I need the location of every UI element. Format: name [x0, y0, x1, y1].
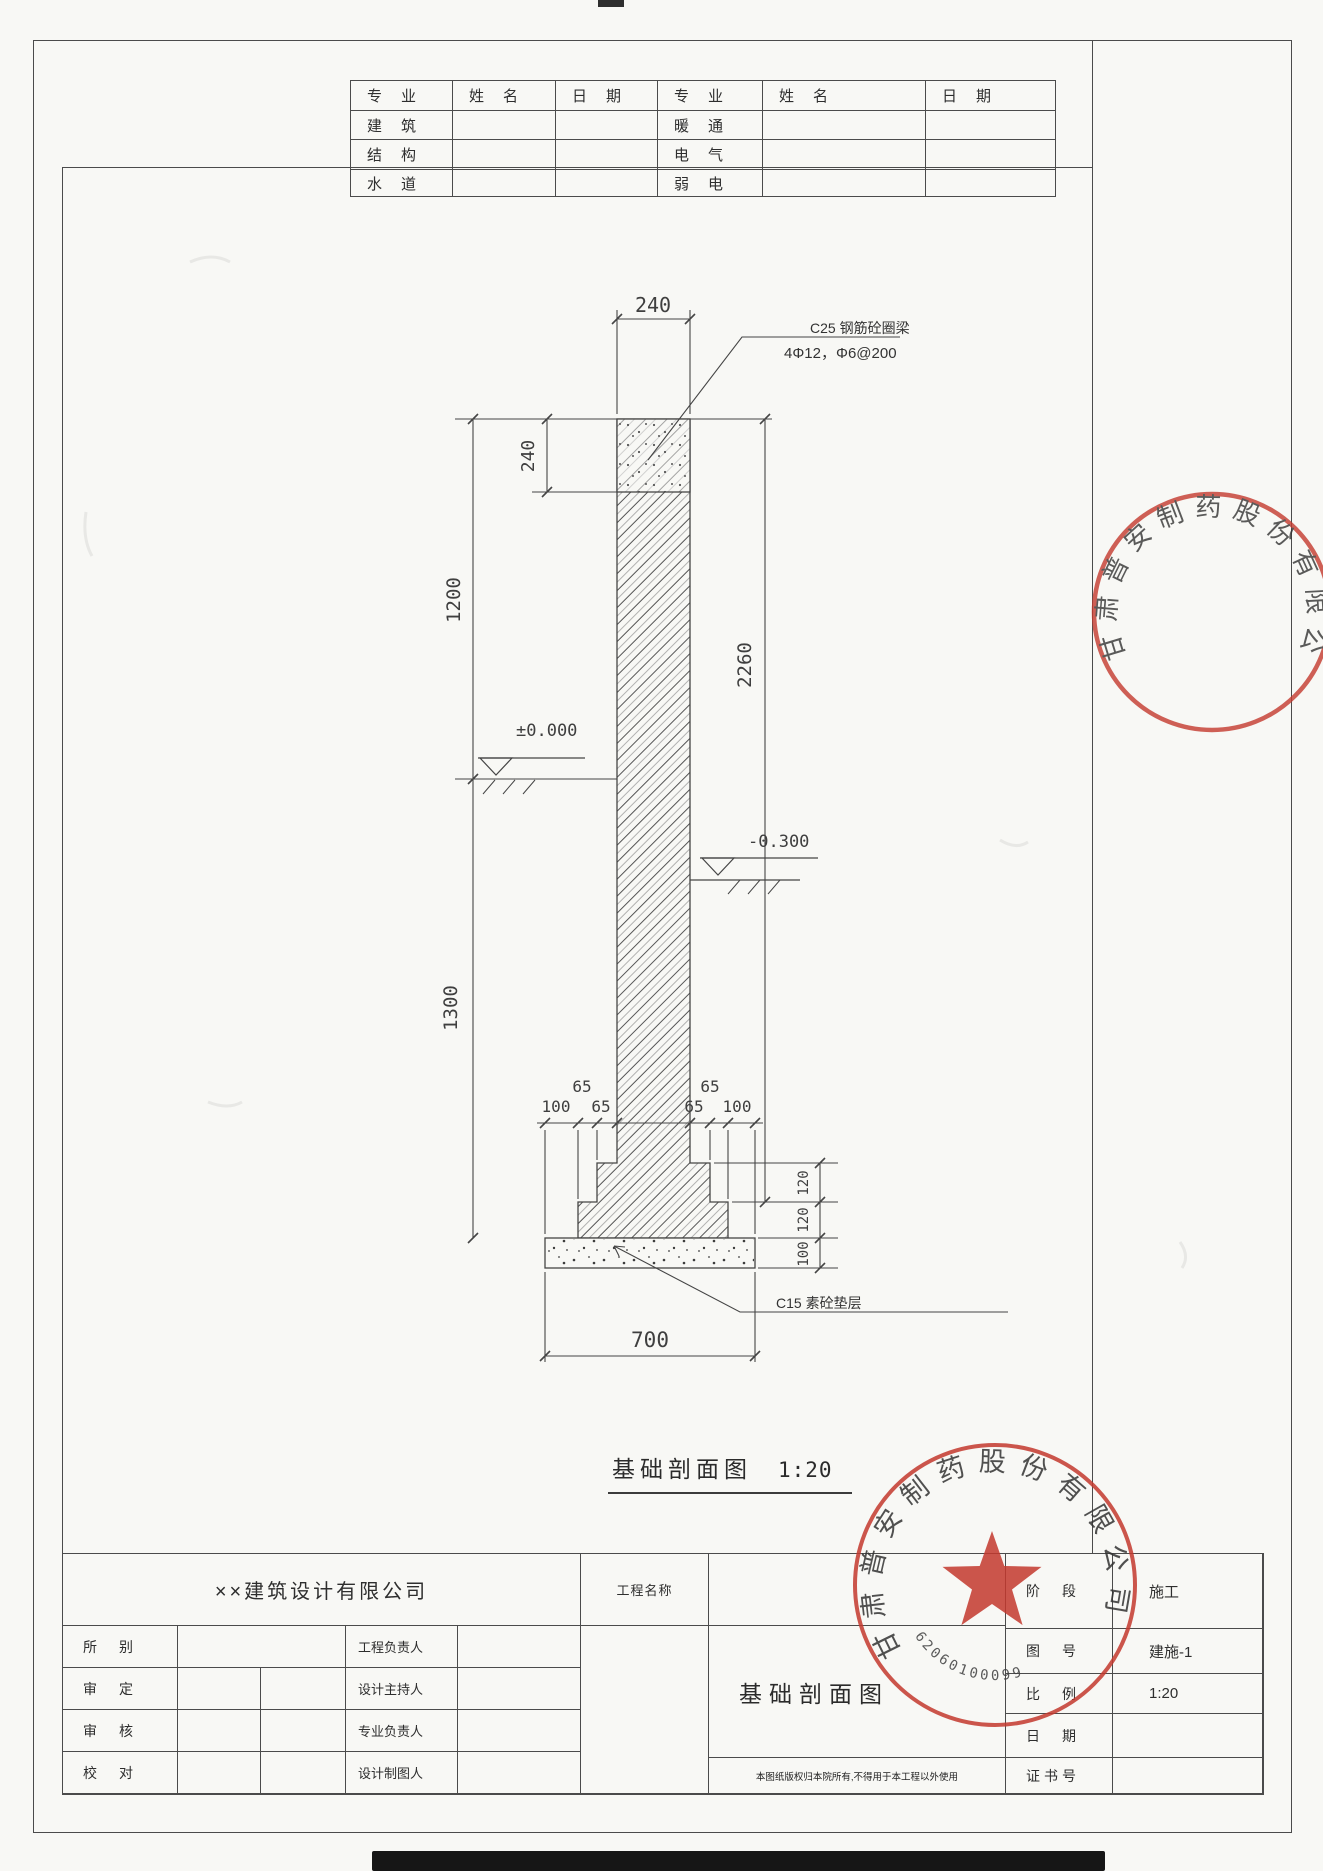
dim-1300: 1300 [440, 985, 462, 1031]
dim-120-b: 120 [796, 1207, 812, 1232]
ring-beam-annotation-line1: C25 钢筋砼圈梁 [810, 320, 910, 336]
scanned-drawing-sheet: 专 业 姓 名 日 期 专 业 姓 名 日 期 建 筑 暖 通 结 构 电 气 … [0, 0, 1323, 1871]
dim-120-a: 120 [796, 1170, 812, 1195]
pad-annotation: C15 素砼垫层 [776, 1295, 862, 1311]
dim-65-right-lower: 65 [684, 1097, 703, 1116]
level-minus-label: -0.300 [748, 832, 809, 852]
dim-1200: 1200 [443, 577, 465, 623]
foundation-section-drawing: 240 240 1200 1300 2260 65 100 65 65 65 1… [0, 0, 1323, 1871]
ring-beam [617, 419, 690, 492]
dim-700: 700 [631, 1328, 669, 1352]
dim-2260: 2260 [734, 642, 756, 688]
company-stamp: 甘肃普安制药股份有限公司 62060100099 [855, 1445, 1135, 1725]
dim-100-h: 100 [796, 1241, 812, 1266]
svg-text:62060100099: 62060100099 [911, 1629, 1026, 1684]
dim-100-right: 100 [723, 1097, 752, 1116]
dim-65-left-lower: 65 [591, 1097, 610, 1116]
dim-100-left: 100 [542, 1097, 571, 1116]
ring-beam-annotation-line2: 4Φ12，Φ6@200 [784, 345, 897, 362]
dim-65-left-upper: 65 [572, 1077, 591, 1096]
dim-beam-240: 240 [518, 440, 539, 473]
dim-65-right-upper: 65 [700, 1077, 719, 1096]
stamp-serial-arc: 62060100099 [911, 1629, 1026, 1684]
level-symbol-minus: -0.300 [690, 832, 818, 894]
stamp-star [943, 1531, 1042, 1625]
ground-hatch-right [728, 880, 780, 894]
ground-hatch-left [483, 780, 535, 794]
dim-top-240: 240 [635, 293, 671, 317]
level-zero-label: ±0.000 [516, 721, 577, 741]
level-symbol-zero: ±0.000 [478, 721, 585, 794]
concrete-pad [545, 1238, 755, 1268]
